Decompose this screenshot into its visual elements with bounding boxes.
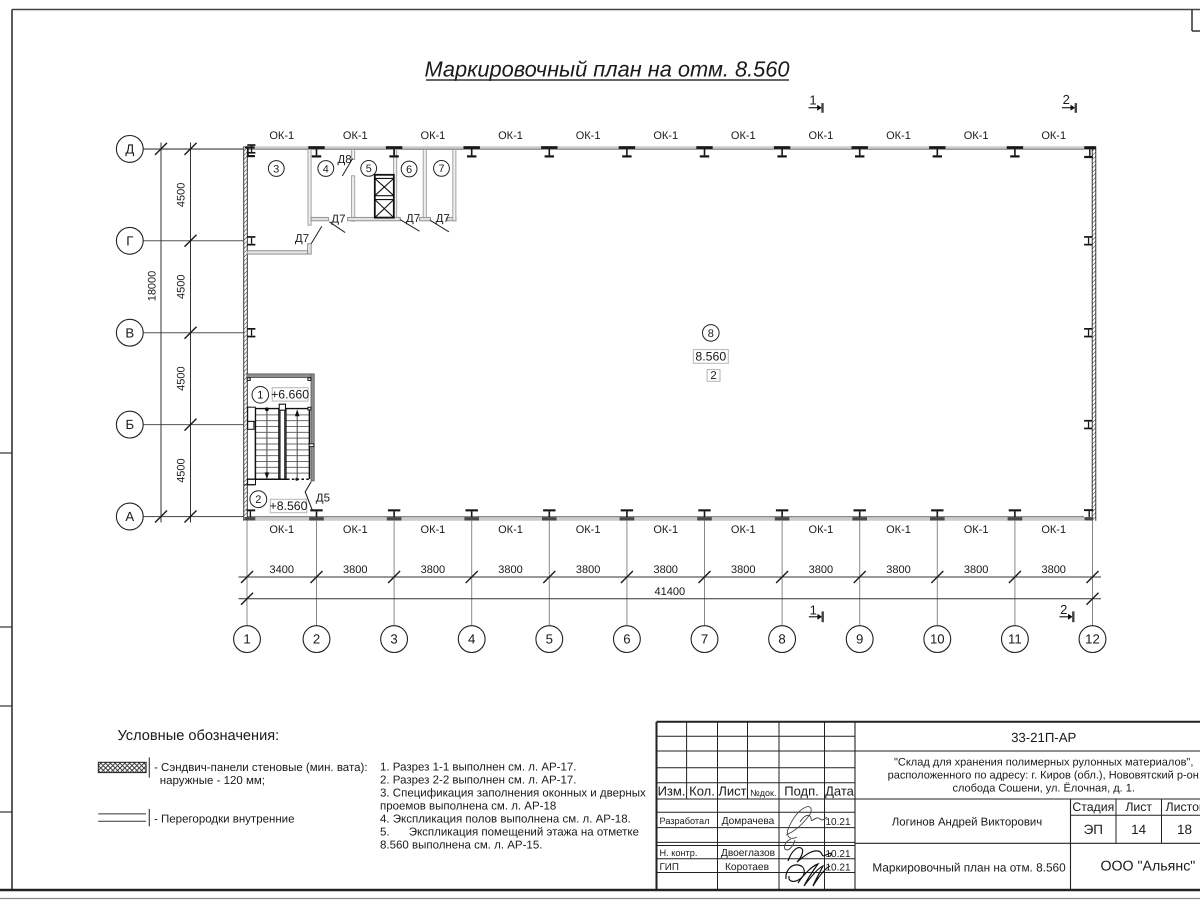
svg-text:ОК-1: ОК-1: [653, 524, 678, 536]
svg-text:2: 2: [313, 632, 320, 647]
svg-text:ОК-1: ОК-1: [809, 130, 834, 142]
svg-text:2. Разрез 2-2 выполнен см. л.: 2. Разрез 2-2 выполнен см. л. АР-17.: [380, 774, 577, 786]
svg-text:ОК-1: ОК-1: [964, 130, 989, 142]
svg-text:слобода Сошени, ул. Ёлочная, д: слобода Сошени, ул. Ёлочная, д. 1.: [952, 782, 1135, 795]
svg-text:4: 4: [468, 632, 475, 647]
svg-text:10.21: 10.21: [825, 863, 850, 874]
svg-text:ОК-1: ОК-1: [731, 524, 756, 536]
svg-text:Дата: Дата: [825, 783, 855, 798]
svg-text:2: 2: [1063, 92, 1070, 107]
svg-text:- Сэндвич-панели стеновые (мин: - Сэндвич-панели стеновые (мин. вата):: [154, 762, 368, 774]
svg-text:ОК-1: ОК-1: [1041, 524, 1066, 536]
svg-text:9: 9: [856, 632, 863, 647]
svg-text:№док.: №док.: [750, 788, 776, 798]
svg-text:4500: 4500: [176, 275, 188, 299]
svg-text:ОК-1: ОК-1: [269, 130, 294, 142]
svg-text:6: 6: [623, 632, 630, 647]
svg-text:10.21: 10.21: [825, 849, 850, 860]
svg-text:Н. контр.: Н. контр.: [660, 848, 698, 858]
svg-text:Листов: Листов: [1166, 800, 1200, 814]
svg-text:ОК-1: ОК-1: [498, 524, 523, 536]
svg-text:1. Разрез 1-1 выполнен см. л.: 1. Разрез 1-1 выполнен см. л. АР-17.: [380, 761, 577, 773]
svg-text:18: 18: [1177, 822, 1192, 837]
svg-text:Д7: Д7: [331, 213, 345, 225]
svg-text:Домрачева: Домрачева: [722, 816, 775, 827]
svg-text:3: 3: [390, 632, 397, 647]
svg-text:ОК-1: ОК-1: [653, 130, 678, 142]
svg-text:3800: 3800: [421, 564, 445, 576]
svg-text:В: В: [125, 325, 134, 340]
svg-text:ОК-1: ОК-1: [269, 524, 294, 536]
svg-text:Лист: Лист: [1125, 800, 1152, 814]
svg-text:10.21: 10.21: [825, 817, 850, 828]
svg-text:ОК-1: ОК-1: [343, 524, 368, 536]
svg-text:- Перегородки внутренние: - Перегородки внутренние: [154, 814, 295, 826]
svg-text:ГИП: ГИП: [660, 862, 679, 873]
svg-text:ОК-1: ОК-1: [964, 524, 989, 536]
svg-text:14: 14: [1131, 822, 1147, 837]
svg-text:Д7: Д7: [406, 213, 420, 225]
svg-text:6: 6: [406, 164, 412, 176]
svg-text:3800: 3800: [653, 564, 677, 576]
svg-text:проемов выполнена см. л. АР-18: проемов выполнена см. л. АР-18: [380, 800, 556, 812]
svg-text:ОК-1: ОК-1: [498, 130, 523, 142]
svg-text:5: 5: [546, 632, 553, 647]
svg-text:Д: Д: [125, 142, 134, 157]
svg-text:7: 7: [701, 632, 708, 647]
svg-text:ОК-1: ОК-1: [576, 524, 601, 536]
svg-text:1: 1: [810, 602, 817, 617]
svg-text:ОК-1: ОК-1: [1041, 130, 1066, 142]
svg-text:ООО "Альянс": ООО "Альянс": [1100, 858, 1195, 874]
svg-text:Г: Г: [126, 233, 133, 248]
svg-text:ОК-1: ОК-1: [343, 130, 368, 142]
svg-text:2: 2: [710, 370, 716, 382]
svg-text:ОК-1: ОК-1: [886, 130, 911, 142]
svg-text:3800: 3800: [343, 564, 367, 576]
svg-text:Условные обозначения:: Условные обозначения:: [118, 728, 280, 744]
svg-text:Маркировочный план на отм. 8.5: Маркировочный план на отм. 8.560: [424, 57, 789, 82]
svg-text:3800: 3800: [886, 564, 910, 576]
svg-text:5. Экспликация помещений: 5. Экспликация помещений этажа на отметк…: [380, 826, 639, 838]
svg-text:ОК-1: ОК-1: [421, 524, 446, 536]
svg-text:+6.660: +6.660: [271, 387, 309, 401]
svg-text:Д5: Д5: [316, 493, 330, 505]
svg-text:ОК-1: ОК-1: [886, 524, 911, 536]
svg-text:Логинов Андрей Викторович: Логинов Андрей Викторович: [892, 817, 1042, 829]
svg-text:ОК-1: ОК-1: [576, 130, 601, 142]
svg-text:3800: 3800: [1041, 564, 1065, 576]
svg-text:ЭП: ЭП: [1084, 822, 1103, 837]
svg-text:8: 8: [708, 328, 714, 340]
svg-text:Подп.: Подп.: [784, 783, 819, 798]
svg-text:Разработал: Разработал: [660, 816, 710, 826]
svg-text:Стадия: Стадия: [1072, 800, 1114, 814]
svg-text:3800: 3800: [964, 564, 988, 576]
svg-text:ОК-1: ОК-1: [809, 524, 834, 536]
svg-text:8.560: 8.560: [695, 349, 726, 363]
svg-text:3. Спецификация заполнения око: 3. Спецификация заполнения оконных и две…: [380, 787, 646, 799]
svg-text:ОК-1: ОК-1: [421, 130, 446, 142]
svg-text:4. Экспликация полов выполнена: 4. Экспликация полов выполнена см. л. АР…: [380, 813, 631, 825]
svg-text:10: 10: [930, 632, 945, 647]
svg-text:Кол.: Кол.: [689, 783, 715, 798]
svg-text:3800: 3800: [576, 564, 600, 576]
svg-text:1: 1: [243, 632, 250, 647]
svg-text:7: 7: [438, 163, 444, 175]
svg-text:3800: 3800: [809, 564, 833, 576]
svg-text:Коротаев: Коротаев: [725, 862, 769, 873]
svg-text:+8.560: +8.560: [270, 499, 308, 513]
svg-text:5: 5: [366, 163, 372, 175]
svg-text:"Склад для хранения полимерных: "Склад для хранения полимерных рулонных …: [894, 756, 1193, 768]
svg-text:3800: 3800: [731, 564, 755, 576]
svg-text:3800: 3800: [498, 564, 522, 576]
svg-text:2: 2: [255, 494, 261, 506]
svg-text:Лист: Лист: [718, 783, 746, 798]
svg-text:33-21П-АР: 33-21П-АР: [1011, 730, 1076, 745]
svg-text:4: 4: [323, 163, 329, 175]
svg-text:Д7: Д7: [436, 213, 450, 225]
svg-text:расположенного по адресу: г. К: расположенного по адресу: г. Киров (обл.…: [888, 770, 1200, 782]
svg-text:1: 1: [257, 390, 263, 402]
svg-text:ОК-1: ОК-1: [731, 130, 756, 142]
svg-text:3400: 3400: [270, 564, 294, 576]
svg-text:2: 2: [1060, 602, 1067, 617]
svg-text:8: 8: [778, 632, 785, 647]
svg-text:41400: 41400: [655, 586, 686, 598]
svg-text:Двоеглазов: Двоеглазов: [721, 848, 775, 859]
svg-text:Маркировочный план на отм. 8.5: Маркировочный план на отм. 8.560: [872, 860, 1066, 874]
svg-text:1: 1: [809, 92, 816, 107]
svg-text:Б: Б: [125, 417, 134, 432]
svg-text:Д8: Д8: [338, 154, 352, 166]
svg-text:4500: 4500: [176, 183, 188, 207]
svg-text:8.560 выполнена см. л. АР-15.: 8.560 выполнена см. л. АР-15.: [380, 839, 542, 851]
svg-text:Д7: Д7: [295, 233, 309, 245]
svg-text:4500: 4500: [176, 366, 188, 390]
svg-text:А: А: [125, 509, 134, 524]
svg-text:11: 11: [1008, 632, 1022, 647]
svg-text:4500: 4500: [176, 458, 188, 482]
svg-text:Изм.: Изм.: [658, 783, 686, 798]
svg-text:3: 3: [273, 163, 279, 175]
svg-text:12: 12: [1085, 632, 1100, 647]
svg-text:18000: 18000: [146, 271, 158, 302]
svg-text:наружные - 120 мм;: наружные - 120 мм;: [160, 775, 265, 787]
